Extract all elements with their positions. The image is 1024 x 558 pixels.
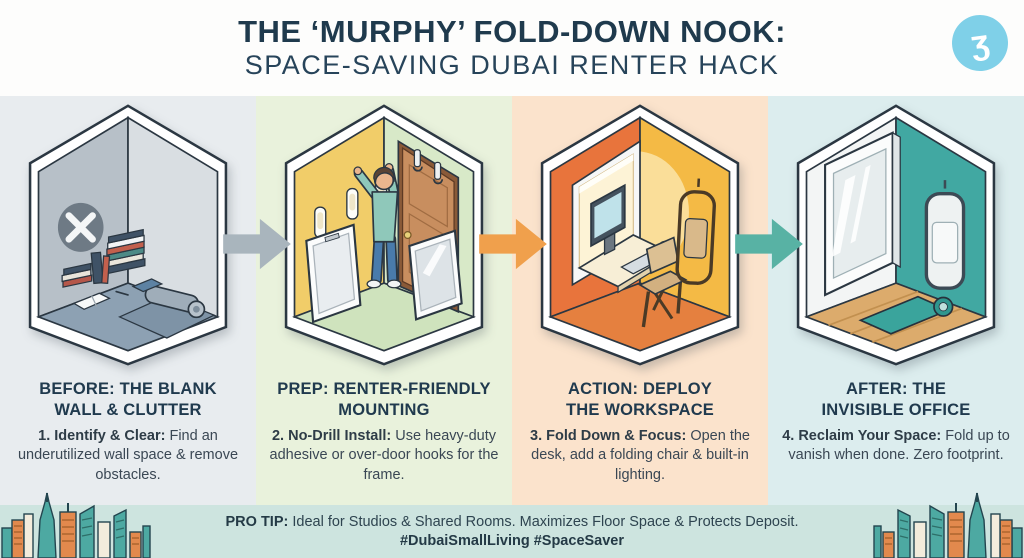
panel-prep: PREP: RENTER-FRIENDLY MOUNTING 2. No-Dri…	[256, 96, 512, 505]
burj-khalifa	[38, 493, 56, 558]
panel-body: 2. No-Drill Install: Use heavy-duty adhe…	[269, 427, 499, 484]
leaning-frame-panel	[409, 231, 461, 320]
step-label: 4. Reclaim Your Space:	[782, 428, 941, 444]
panel-action: ACTION: DEPLOY THE WORKSPACE 3. Fold Dow…	[512, 96, 768, 505]
panel-heading: PREP: RENTER-FRIENDLY MOUNTING	[264, 379, 504, 420]
steps-row: BEFORE: THE BLANK WALL & CLUTTER 1. Iden…	[0, 96, 1024, 505]
page-subtitle: SPACE-SAVING DUBAI RENTER HACK	[0, 51, 1024, 79]
dubai-skyline-left	[0, 490, 152, 558]
panel-after: AFTER: THE INVISIBLE OFFICE 4. Reclaim Y…	[768, 96, 1024, 505]
step-arrow-icon	[733, 215, 805, 273]
illustration-after-room	[793, 104, 999, 366]
panel-before: BEFORE: THE BLANK WALL & CLUTTER 1. Iden…	[0, 96, 256, 505]
pro-tip-label: PRO TIP:	[226, 514, 289, 530]
header: THE ‘MURPHY’ FOLD-DOWN NOOK: SPACE-SAVIN…	[0, 0, 1024, 96]
step-label: 3. Fold Down & Focus:	[530, 428, 686, 444]
illustration-prep-room	[281, 104, 487, 366]
step-arrow-icon	[221, 215, 293, 273]
burj-khalifa	[968, 493, 986, 558]
panel-heading: ACTION: DEPLOY THE WORKSPACE	[520, 379, 760, 420]
wall-hung-folded-chair	[926, 180, 963, 288]
infographic-page: THE ‘MURPHY’ FOLD-DOWN NOOK: SPACE-SAVIN…	[0, 0, 1024, 558]
pro-tip-text: PRO TIP: Ideal for Studios & Shared Room…	[0, 513, 1024, 531]
hashtags-text: #DubaiSmallLiving #SpaceSaver	[0, 532, 1024, 550]
illustration-before-room	[25, 104, 231, 366]
page-title: THE ‘MURPHY’ FOLD-DOWN NOOK:	[0, 0, 1024, 49]
step-label: 1. Identify & Clear:	[38, 428, 165, 444]
step-arrow-icon	[477, 215, 549, 273]
prohibition-x-icon	[58, 203, 104, 252]
panel-body: 3. Fold Down & Focus: Open the desk, add…	[525, 427, 755, 484]
footer-tip-bar: PRO TIP: Ideal for Studios & Shared Room…	[0, 505, 1024, 558]
leaning-frame-panel	[306, 225, 360, 322]
panel-heading: BEFORE: THE BLANK WALL & CLUTTER	[8, 379, 248, 420]
illustration-action-room	[537, 104, 743, 366]
panel-body: 4. Reclaim Your Space: Fold up to vanish…	[781, 427, 1011, 465]
panel-heading: AFTER: THE INVISIBLE OFFICE	[776, 379, 1016, 420]
step-label: 2. No-Drill Install:	[272, 428, 391, 444]
panel-body: 1. Identify & Clear: Find an underutiliz…	[13, 427, 243, 484]
dubai-skyline-right	[872, 490, 1024, 558]
